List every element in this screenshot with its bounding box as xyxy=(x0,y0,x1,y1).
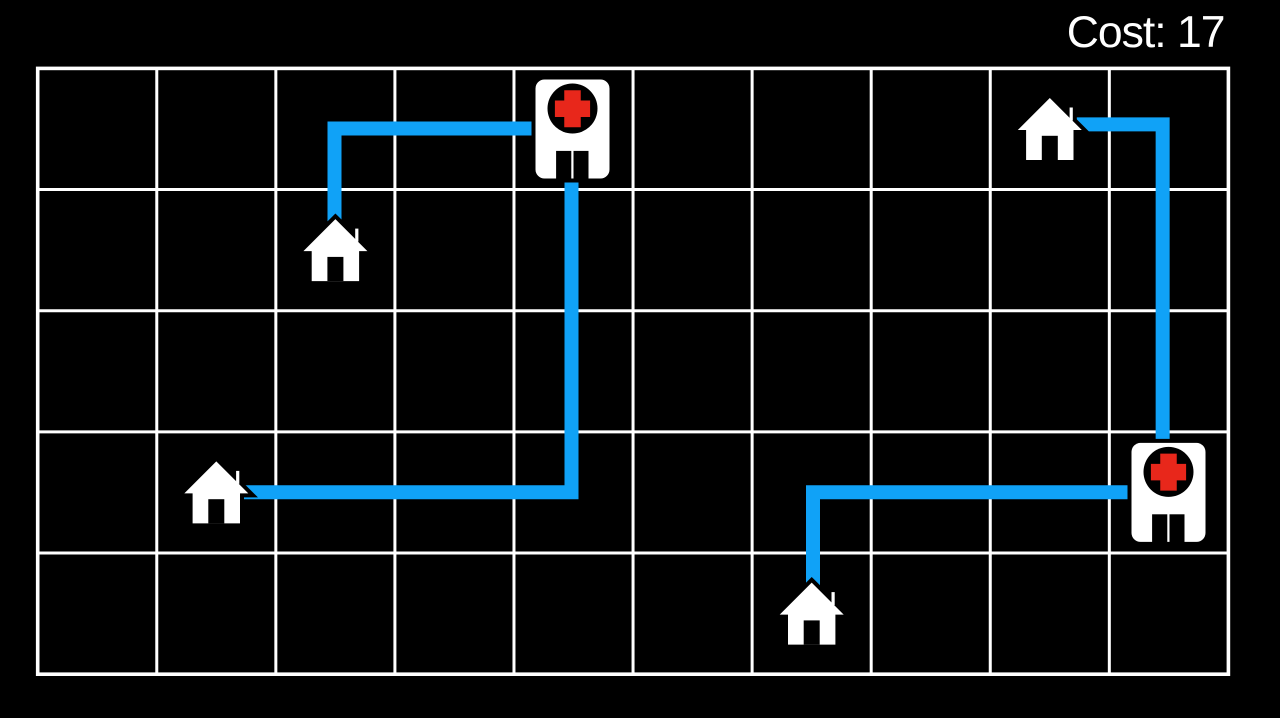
svg-text:Cost: 17: Cost: 17 xyxy=(1067,8,1225,57)
